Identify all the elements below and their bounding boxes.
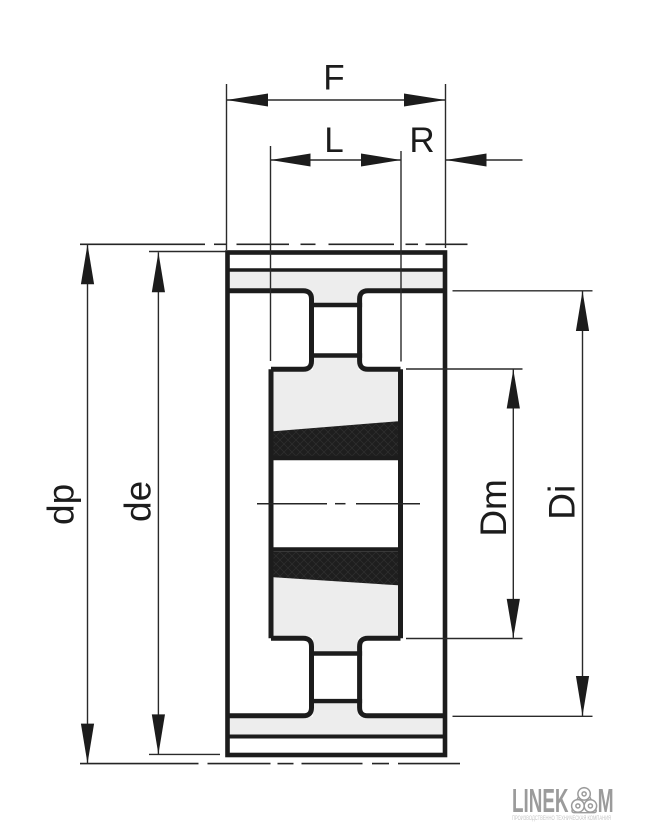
svg-text:ПРОИЗВОДСТВЕННО ТЕХНИЧЕСКАЯ КО: ПРОИЗВОДСТВЕННО ТЕХНИЧЕСКАЯ КОМПАНИЯ (512, 815, 611, 822)
svg-text:L: L (324, 121, 343, 160)
svg-text:F: F (323, 59, 344, 98)
svg-text:R: R (409, 121, 434, 160)
svg-text:Di: Di (542, 485, 583, 520)
svg-text:de: de (118, 481, 159, 522)
svg-text:Dm: Dm (473, 479, 514, 537)
svg-text:dp: dp (40, 484, 81, 525)
